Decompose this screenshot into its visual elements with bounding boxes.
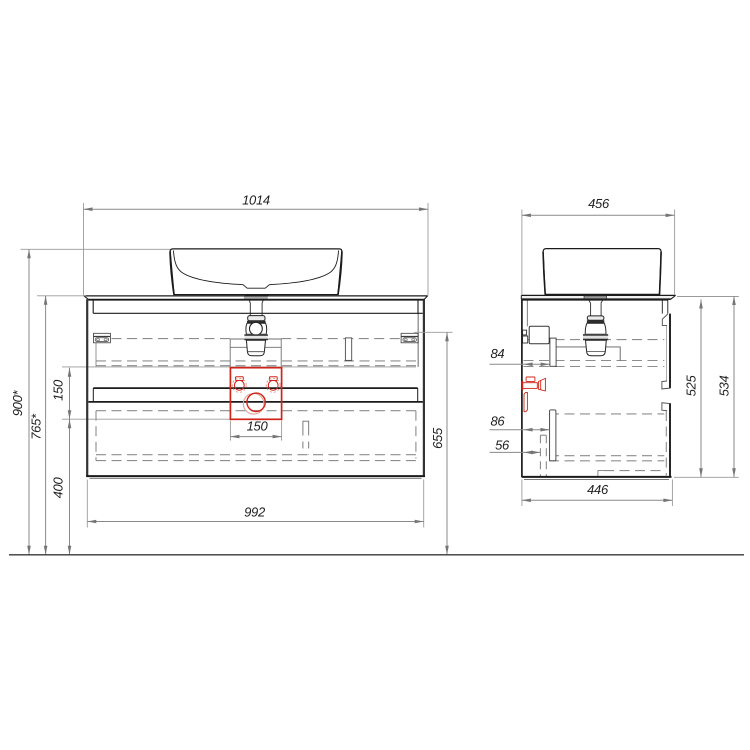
svg-text:86: 86 [490, 414, 505, 429]
svg-text:534: 534 [717, 376, 732, 397]
svg-text:1014: 1014 [242, 192, 270, 207]
svg-text:84: 84 [490, 346, 504, 361]
svg-text:150: 150 [247, 419, 269, 434]
svg-text:400: 400 [51, 477, 66, 499]
svg-text:992: 992 [244, 505, 266, 520]
svg-text:525: 525 [683, 375, 698, 397]
svg-text:446: 446 [587, 482, 609, 497]
svg-text:765*: 765* [29, 413, 44, 440]
svg-text:150: 150 [51, 379, 66, 401]
svg-text:456: 456 [588, 196, 610, 211]
svg-text:900*: 900* [10, 389, 25, 416]
svg-text:56: 56 [495, 438, 510, 453]
svg-text:655: 655 [430, 427, 445, 449]
